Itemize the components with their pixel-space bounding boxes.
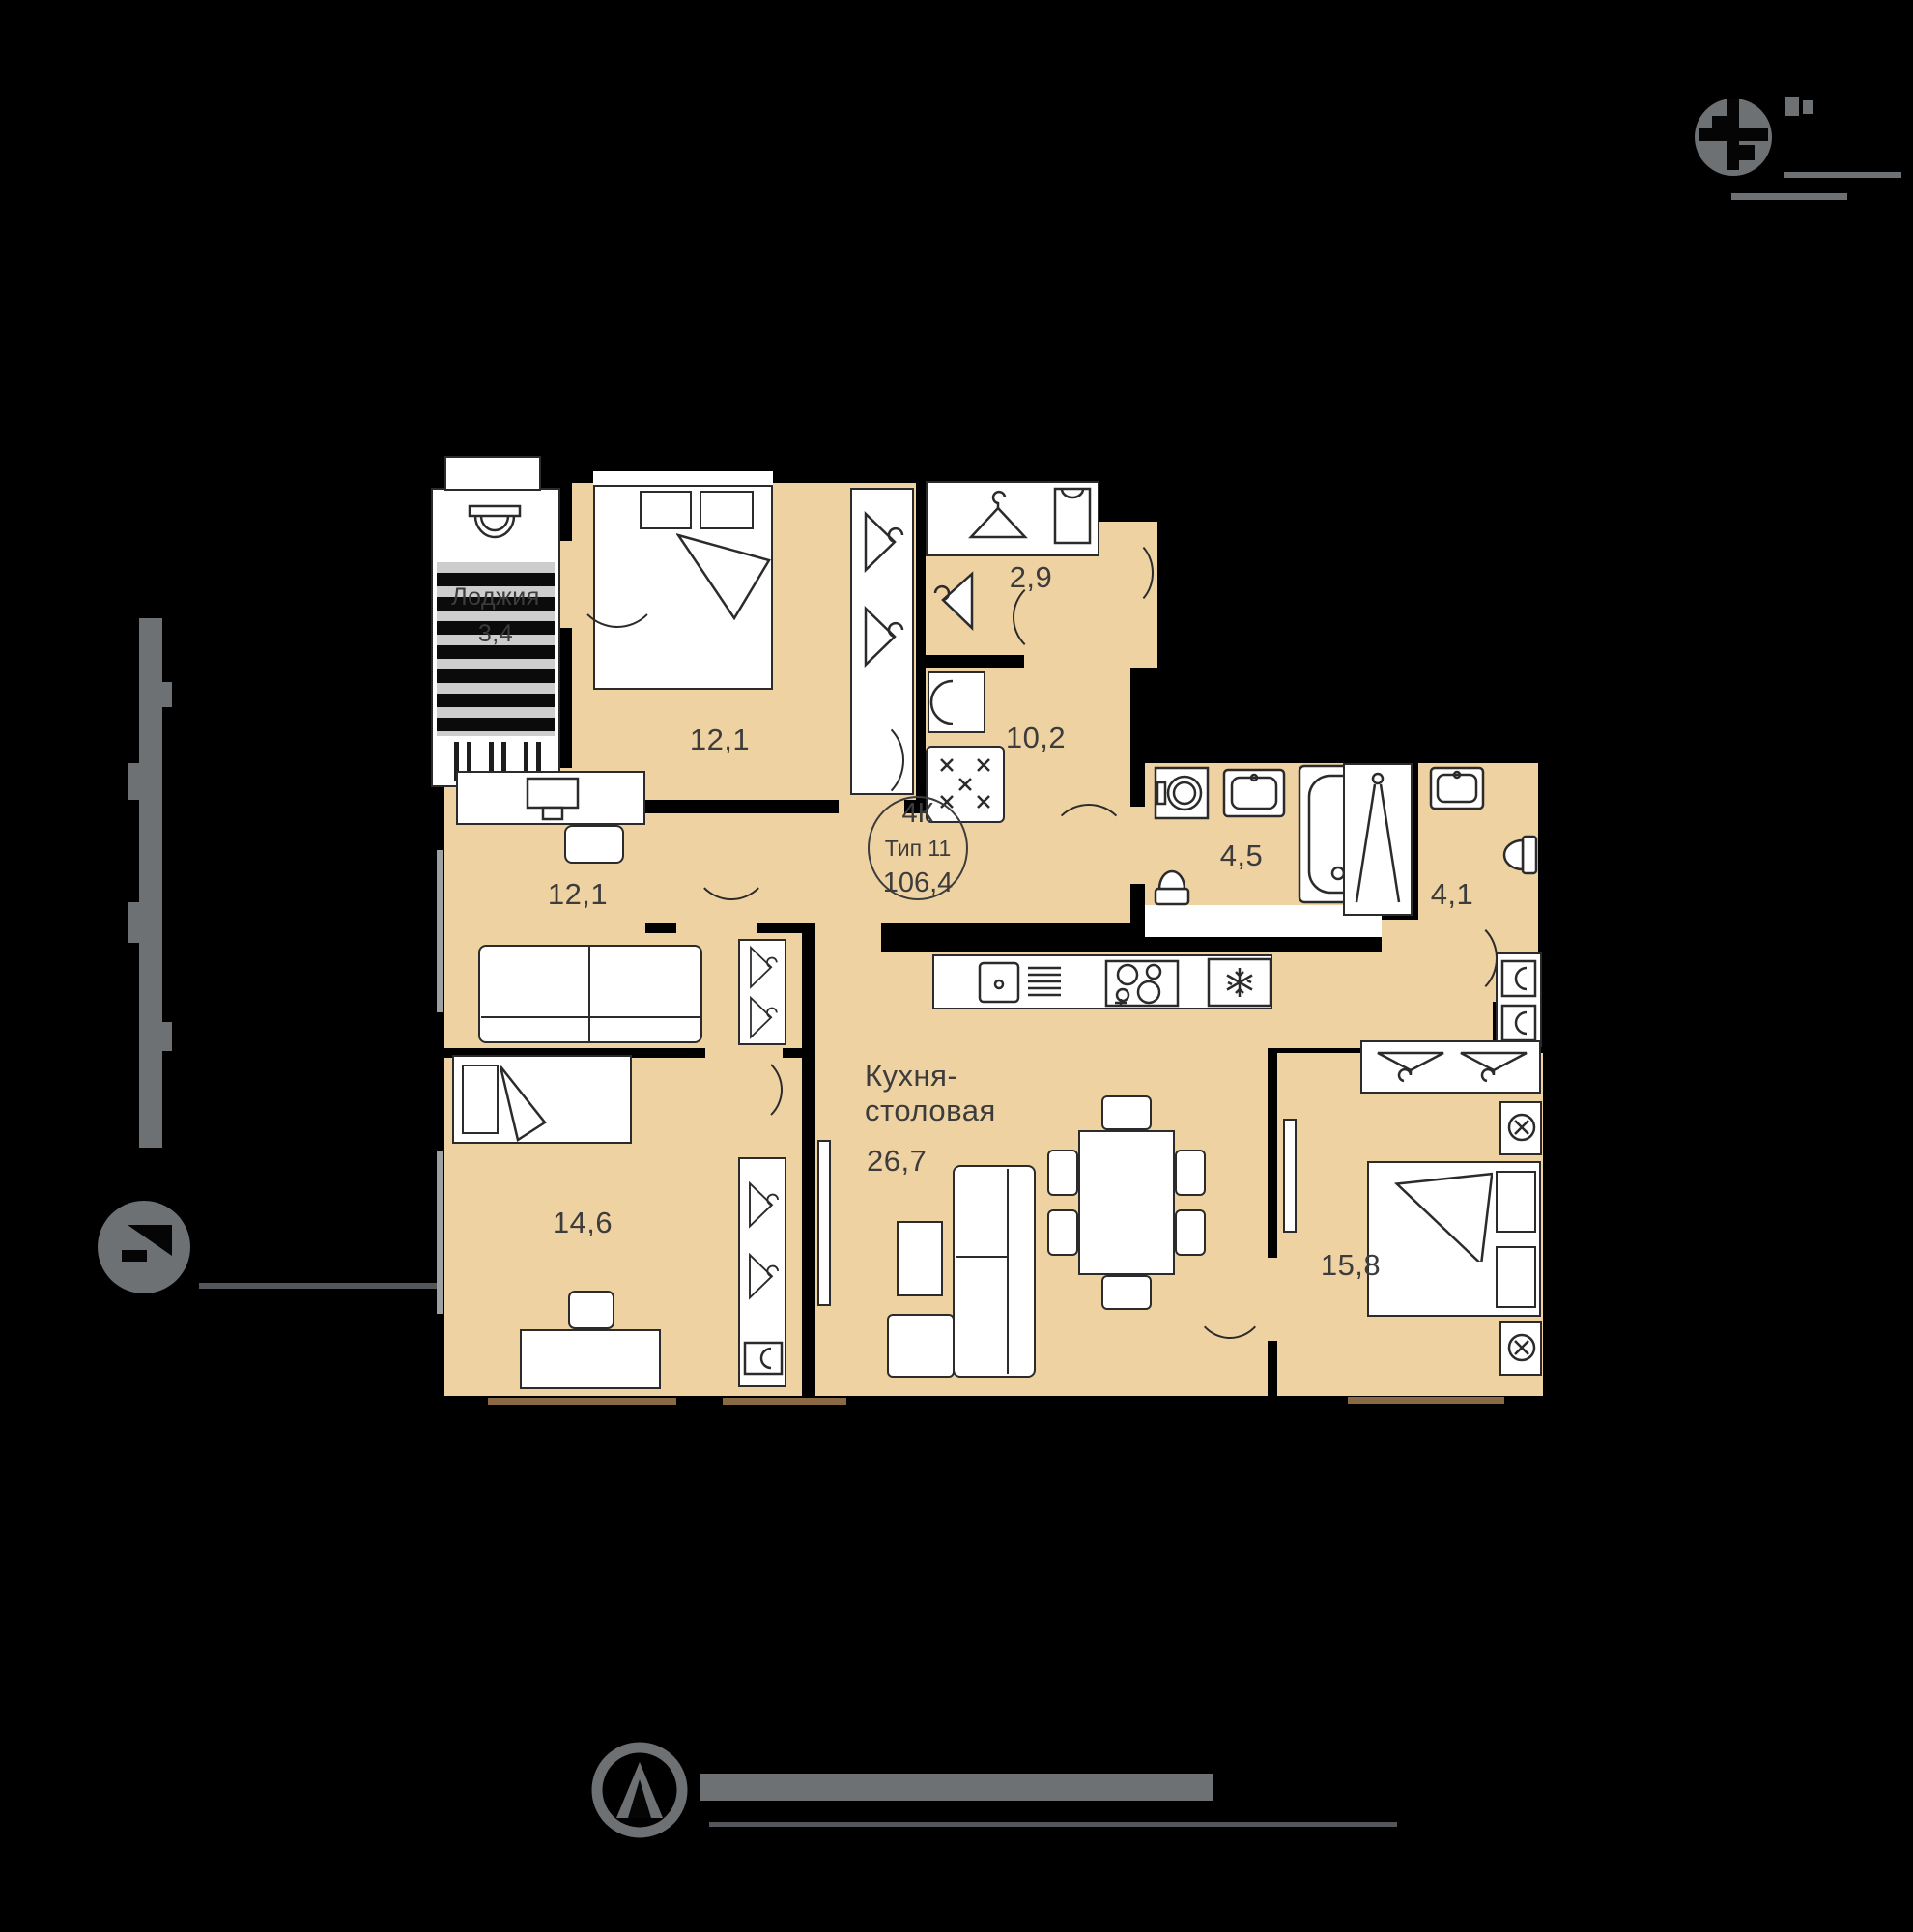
children-door-arc bbox=[707, 1053, 783, 1126]
badge-rooms-label: 4К bbox=[901, 798, 933, 830]
plan-type-badge: 4К Тип 11 106,4 bbox=[868, 796, 968, 900]
bathroom-door-opening bbox=[1128, 807, 1148, 884]
coffee-table-icon bbox=[897, 1221, 943, 1296]
bathroom-area-label: 4,5 bbox=[1198, 838, 1285, 873]
dining-chair-icon bbox=[1101, 1275, 1152, 1310]
hanger-icon bbox=[742, 1180, 783, 1231]
sofa-icon bbox=[478, 945, 702, 1043]
street-name-left-detail bbox=[162, 682, 172, 707]
window-line bbox=[437, 850, 443, 1012]
hanger-icon bbox=[858, 510, 906, 576]
dining-chair-icon bbox=[1175, 1150, 1206, 1196]
street-name-left-detail bbox=[128, 763, 139, 800]
office-door-opening bbox=[676, 908, 757, 937]
mirror-arc-icon bbox=[929, 675, 964, 729]
master-door-opening bbox=[1266, 1258, 1279, 1341]
shelf-box-icon bbox=[1499, 958, 1538, 999]
kitchen-area-label: 26,7 bbox=[867, 1144, 927, 1179]
pillow-icon bbox=[1496, 1246, 1536, 1308]
hanger-icon bbox=[742, 1252, 783, 1302]
monitor-icon bbox=[522, 775, 584, 823]
master-door-arc bbox=[1192, 1256, 1268, 1339]
loggia-door-opening bbox=[560, 541, 574, 628]
compass-icon bbox=[1689, 87, 1785, 195]
shelf-box-icon bbox=[1499, 1003, 1538, 1043]
bathroom-door-arc bbox=[1049, 804, 1128, 881]
window-line bbox=[437, 1151, 443, 1314]
shower-wc-door-arc bbox=[1420, 918, 1498, 999]
chair-icon bbox=[564, 825, 624, 864]
stove-icon bbox=[1103, 958, 1181, 1009]
desk-icon bbox=[520, 1329, 661, 1389]
loggia-area-label: 3,4 bbox=[437, 620, 555, 648]
washbasin-icon bbox=[462, 500, 528, 560]
washing-machine-icon bbox=[1152, 765, 1212, 821]
pillow-icon bbox=[640, 491, 692, 529]
sink-icon bbox=[1221, 767, 1287, 819]
dining-chair-icon bbox=[1047, 1209, 1078, 1256]
pillow-icon bbox=[1496, 1171, 1536, 1233]
blanket-fold-icon bbox=[499, 1065, 566, 1144]
sofa-seat-line bbox=[481, 1016, 700, 1018]
window-sill bbox=[1348, 1397, 1504, 1404]
dining-table-icon bbox=[1078, 1130, 1175, 1275]
bedroom-top-door-arc bbox=[823, 717, 904, 804]
sofa-back-line bbox=[1007, 1169, 1009, 1374]
street-line bbox=[199, 1283, 437, 1289]
shower-lines-icon bbox=[1345, 765, 1411, 914]
street-marker-icon bbox=[591, 1737, 688, 1843]
kitchen-sink-icon bbox=[974, 958, 1067, 1007]
hanger-icon bbox=[858, 605, 906, 670]
sofa-seat-line bbox=[956, 1256, 1008, 1258]
sofa-l-icon bbox=[953, 1165, 1036, 1378]
loggia-name-label: Лоджия bbox=[437, 583, 555, 611]
bedroom-top-window bbox=[593, 471, 773, 485]
hanger-icon bbox=[742, 945, 783, 991]
kitchen-name-line1: Кухня- bbox=[865, 1059, 957, 1094]
sconce-lamp-icon bbox=[1503, 1109, 1540, 1146]
sconce-lamp-icon bbox=[1503, 1329, 1540, 1366]
compass-line bbox=[1784, 172, 1901, 178]
badge-area-label: 106,4 bbox=[883, 867, 954, 899]
hall-kitchen-opening bbox=[815, 918, 881, 954]
street-name-left bbox=[139, 618, 162, 1148]
dining-chair-icon bbox=[1175, 1209, 1206, 1256]
shower-wc-area-label: 4,1 bbox=[1409, 877, 1496, 912]
street-name-left-detail bbox=[128, 902, 139, 943]
sofa-divider bbox=[588, 947, 590, 1041]
hall-area-label: 10,2 bbox=[987, 721, 1084, 755]
sink-icon bbox=[1428, 765, 1486, 811]
compass-caption bbox=[1731, 193, 1847, 200]
dining-chair-icon bbox=[1101, 1095, 1152, 1130]
compass-tick bbox=[1803, 100, 1813, 114]
drawer-box-icon bbox=[742, 1337, 785, 1379]
children-area-label: 14,6 bbox=[529, 1206, 636, 1240]
tv-panel-icon bbox=[817, 1140, 831, 1306]
dining-chair-icon bbox=[1047, 1150, 1078, 1196]
flat-hanger-icon bbox=[1457, 1047, 1530, 1088]
flat-hanger-icon bbox=[1374, 1047, 1447, 1088]
tv-panel-icon bbox=[1283, 1119, 1297, 1233]
folded-shirt-icon bbox=[1049, 483, 1096, 549]
kitchen-name-line2: столовая bbox=[865, 1094, 996, 1128]
street-marker-icon bbox=[93, 1196, 195, 1298]
office-area-label: 12,1 bbox=[529, 877, 626, 912]
pillow-icon bbox=[700, 491, 754, 529]
fridge-snowflake-icon bbox=[1206, 956, 1273, 1009]
hanger-icon bbox=[966, 489, 1030, 547]
sofa-chaise-icon bbox=[887, 1314, 955, 1378]
bedroom-top-area-label: 12,1 bbox=[676, 723, 763, 757]
master-area-label: 15,8 bbox=[1302, 1248, 1399, 1283]
blanket-fold-icon bbox=[1391, 1165, 1493, 1262]
street-line bbox=[709, 1822, 1397, 1827]
blanket-fold-icon bbox=[676, 533, 773, 620]
floor-plan-canvas: Лоджия 3,4 12,1 2,9 10,2 bbox=[0, 0, 1913, 1932]
hanger-icon bbox=[742, 995, 783, 1041]
office-door-arc bbox=[692, 819, 771, 900]
window-sill bbox=[723, 1398, 846, 1405]
toilet-icon bbox=[1150, 850, 1194, 908]
loggia-door-arc bbox=[574, 539, 661, 628]
loggia-ledge bbox=[444, 456, 541, 491]
wall-segment bbox=[1145, 937, 1382, 952]
street-name-left-detail bbox=[162, 1022, 172, 1051]
chair-icon bbox=[568, 1291, 614, 1329]
badge-type-label: Тип 11 bbox=[885, 836, 952, 862]
street-name-bottom bbox=[700, 1774, 1213, 1801]
window-sill bbox=[488, 1398, 676, 1405]
hanger-icon bbox=[933, 570, 980, 634]
pillow-icon bbox=[462, 1065, 499, 1134]
toilet-icon bbox=[1480, 829, 1540, 881]
entry-door-arc bbox=[1094, 537, 1154, 609]
dressing-door-arc bbox=[1013, 578, 1092, 657]
compass-tick bbox=[1785, 97, 1799, 116]
